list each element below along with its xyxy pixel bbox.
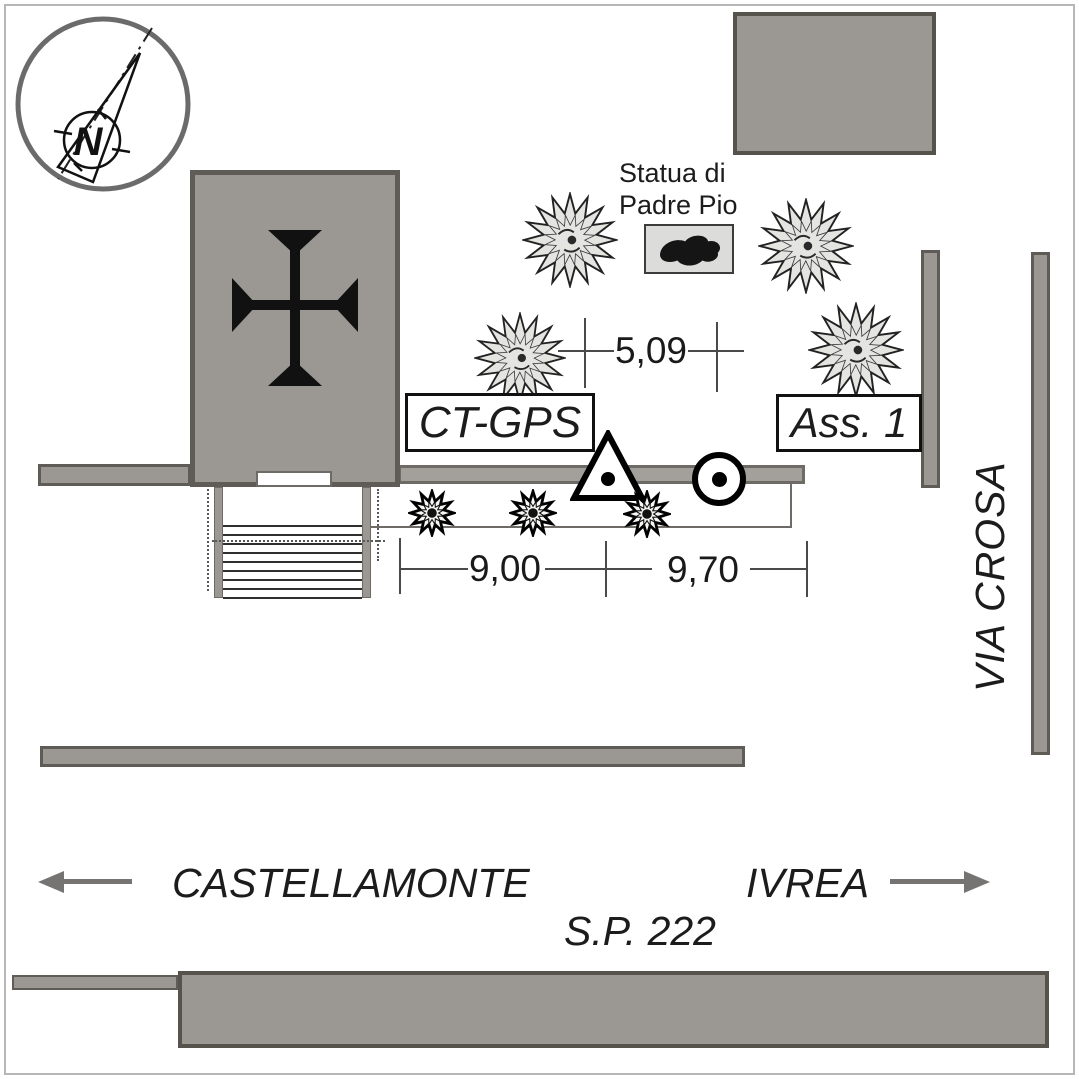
stairs-dotted-mid	[212, 540, 385, 542]
statue-label: Statua di Padre Pio	[619, 158, 738, 222]
statue-box	[644, 224, 734, 274]
arrow-left-line	[62, 879, 132, 884]
tree-icon	[808, 302, 904, 398]
ct-gps-label: CT-GPS	[419, 398, 581, 448]
castellamonte-label: CASTELLAMONTE	[172, 860, 530, 907]
wall-via-crosa-west	[921, 250, 940, 488]
wall-south	[40, 746, 745, 767]
ct-gps-label-box: CT-GPS	[405, 393, 595, 452]
dim-509-tick-right	[716, 322, 718, 392]
wall-via-crosa-east	[1031, 252, 1050, 755]
compass-north-label: N	[74, 120, 104, 164]
dim-900-value: 9,00	[455, 548, 555, 590]
sp-222-label: S.P. 222	[540, 908, 740, 955]
stairs-dotted-left	[207, 489, 209, 591]
statue-footprint-icon	[646, 226, 732, 272]
dim-509-value: 5,09	[613, 330, 689, 372]
dim-9-line-b	[545, 568, 652, 570]
dim-9-tick-1	[399, 538, 401, 594]
statue-label-line1: Statua di	[619, 158, 738, 190]
arrow-right-line	[890, 879, 966, 884]
stairs-steps	[223, 525, 362, 599]
tree-icon	[474, 312, 566, 404]
arrow-left-icon	[38, 871, 64, 893]
dim-509-line-left	[558, 350, 614, 352]
tree-icon	[522, 192, 618, 288]
bush-icon	[623, 490, 671, 538]
reference-circle-dot	[712, 472, 727, 487]
stairs-right-post	[362, 487, 371, 598]
ass-1-label: Ass. 1	[791, 399, 908, 447]
dim-9-tick-3	[806, 541, 808, 597]
via-crosa-label: VIA CROSA	[967, 462, 1007, 692]
tree-icon	[758, 198, 854, 294]
dim-970-value: 9,70	[650, 549, 756, 591]
church-building	[190, 170, 400, 487]
reference-circle-icon	[692, 452, 746, 506]
statue-label-line2: Padre Pio	[619, 190, 738, 222]
stairs-dotted-right	[377, 489, 379, 561]
road-strip-main	[178, 971, 1049, 1048]
wall-left	[38, 464, 191, 486]
road-strip-thin	[12, 975, 178, 990]
north-compass-icon: N	[10, 11, 200, 201]
ivrea-label: IVREA	[746, 860, 869, 907]
site-map: N Statua di Padre Pio	[0, 0, 1079, 1079]
dim-9-line-c	[750, 568, 806, 570]
building-top-right	[733, 12, 936, 155]
dim-509-tick-left	[584, 318, 586, 388]
church-cross-icon	[230, 228, 360, 388]
courtyard-edge-right	[790, 484, 792, 527]
stairs-left-post	[214, 487, 223, 598]
dim-509-line-right	[688, 350, 744, 352]
church-door	[256, 471, 332, 487]
arrow-right-icon	[964, 871, 990, 893]
bush-icon	[408, 489, 456, 537]
bush-icon	[509, 489, 557, 537]
ass-1-label-box: Ass. 1	[776, 394, 922, 452]
